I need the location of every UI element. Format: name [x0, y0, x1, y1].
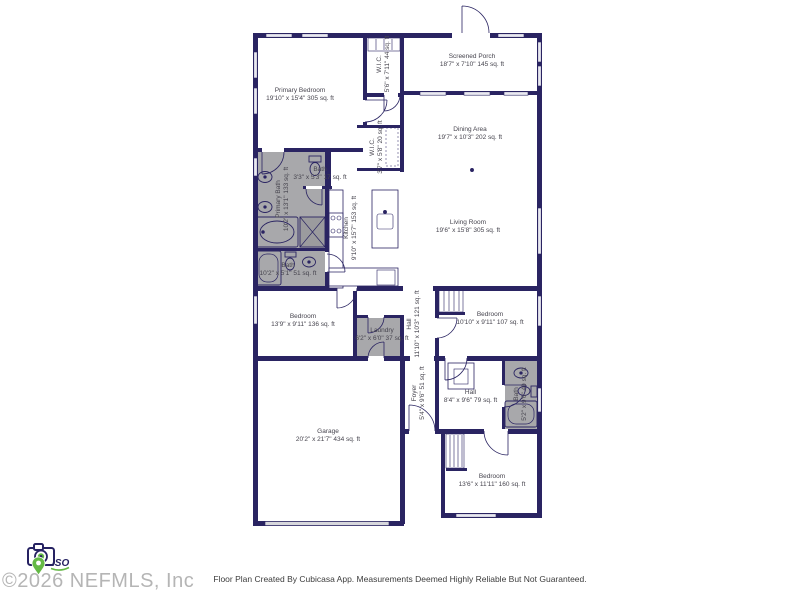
kitchen-island [372, 190, 398, 248]
room-label-primary-bath: Primary Bath 10'2" x 13'1" 133 sq. ft [275, 154, 291, 244]
room-label-wic-2: W.I.C. 3'7" x 5'8" 20 sq. ft [369, 107, 385, 187]
footer-disclaimer: Floor Plan Created By Cubicasa App. Meas… [0, 574, 800, 584]
room-label-bedroom-2: Bedroom 10'10" x 9'11" 107 sq. ft [430, 311, 550, 327]
room-label-dining-area: Dining Area 19'7" x 10'3" 202 sq. ft [410, 126, 530, 142]
room-label-bedroom-1: Bedroom 13'9" x 9'11" 136 sq. ft [243, 313, 363, 329]
linen-closet [448, 363, 474, 389]
room-label-screened-porch: Screened Porch 18'7" x 7'10" 145 sq. ft [412, 53, 532, 69]
room-label-hall-1: Hall 11'10" x 10'3" 121 sq. ft [406, 281, 422, 367]
garage-door [265, 522, 389, 526]
room-label-bath-3: Bath 5'2" x 9'6" 49 sq. ft [513, 357, 529, 431]
room-label-primary-bedroom: Primary Bedroom 19'10" x 15'4" 305 sq. f… [240, 87, 360, 103]
room-label-bath-small: Bath 3'3" x 5'3" 17 sq. ft [292, 166, 348, 182]
shower-icon [300, 217, 325, 247]
room-label-hall-2: Hall 8'4" x 9'6" 79 sq. ft [423, 389, 518, 405]
iso-badge: ISO [52, 558, 69, 569]
room-label-garage: Garage 20'2" x 21'7" 434 sq. ft [268, 428, 388, 444]
room-label-bedroom-3: Bedroom 13'6" x 11'11" 160 sq. ft [432, 473, 552, 489]
room-label-kitchen: Kitchen 9'10" x 15'7" 153 sq. ft [343, 183, 359, 273]
room-label-living-room: Living Room 19'6" x 15'8" 305 sq. ft [408, 219, 528, 235]
floorplan-drawing [0, 0, 800, 600]
room-label-bath-2: Bath 10'2" x 5'1" 51 sq. ft [238, 262, 338, 278]
room-label-wic-1: W.I.C. 5'6" x 7'11" 44 sq. ft [376, 21, 392, 107]
floorplan-page: Primary Bedroom 19'10" x 15'4" 305 sq. f… [0, 0, 800, 600]
ceiling-fixture-mark [471, 169, 474, 172]
